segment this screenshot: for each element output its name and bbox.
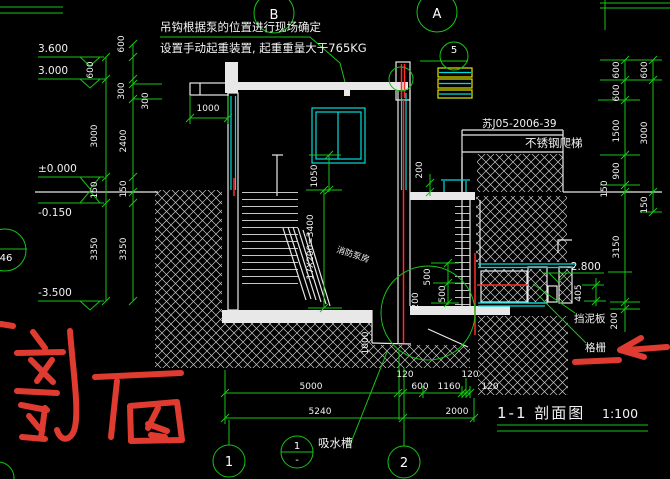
dim: 3150 bbox=[612, 235, 622, 258]
red-underline bbox=[575, 360, 619, 362]
dim: 600 bbox=[117, 35, 127, 52]
dim: 500 bbox=[438, 285, 448, 302]
dim: 500 bbox=[423, 268, 433, 285]
dim: 120 bbox=[481, 382, 498, 392]
drawing-title: 1-1 剖面图 bbox=[497, 404, 585, 422]
dim: 150 bbox=[90, 181, 100, 198]
dim: 3350 bbox=[119, 237, 129, 260]
elev-text-3000: 3.000 bbox=[38, 65, 68, 77]
left-dim-chains bbox=[102, 40, 162, 305]
dim: 600 bbox=[612, 61, 622, 78]
dim: 150 bbox=[600, 180, 610, 197]
red-edge-dash bbox=[1, 324, 13, 326]
drawing-scale: 1:100 bbox=[602, 406, 638, 421]
dim: 1000 bbox=[197, 104, 220, 114]
dim: 300 bbox=[117, 82, 127, 99]
dim: 3350 bbox=[90, 237, 100, 260]
dim: 405 bbox=[574, 284, 584, 301]
dim: 1050 bbox=[310, 164, 320, 187]
chamber-floor bbox=[410, 306, 510, 315]
sump-detail-sheet: - bbox=[295, 455, 299, 466]
handwritten-pou bbox=[17, 331, 76, 439]
drawing-canvas: 吊钩根据泵的位置进行现场确定 设置手动起重装置, 起重重量大于765KG 苏J0… bbox=[0, 0, 670, 479]
dim: 900 bbox=[612, 162, 622, 179]
dim: 1000 bbox=[361, 331, 371, 354]
dim: 1160 bbox=[438, 382, 461, 392]
dim-stair: 17X200=3400 bbox=[306, 214, 316, 280]
dim: 5000 bbox=[300, 382, 323, 392]
dim: 600 bbox=[640, 61, 650, 78]
lifting-hook bbox=[344, 90, 350, 96]
elev-text-3600: 3.600 bbox=[38, 43, 68, 55]
ladder-label: 不锈钢爬梯 bbox=[525, 136, 583, 150]
earth-hatch bbox=[155, 154, 572, 395]
stair-treads bbox=[242, 192, 298, 284]
title-underline bbox=[497, 425, 648, 431]
elev-3000 bbox=[38, 79, 106, 88]
bubble-46 bbox=[0, 229, 26, 271]
red-arrow bbox=[620, 338, 667, 357]
dim: 3000 bbox=[90, 124, 100, 147]
sump-label: 吸水槽 bbox=[318, 436, 353, 450]
mudguard-label: 挡泥板 bbox=[574, 312, 606, 325]
dim: 200 bbox=[610, 312, 620, 329]
dim: 2400 bbox=[119, 129, 129, 152]
elev-text-0: ±0.000 bbox=[38, 163, 77, 175]
dim: 150 bbox=[640, 196, 650, 213]
elev-text-m150: -0.150 bbox=[38, 207, 72, 219]
elev-m2800 bbox=[542, 273, 604, 282]
dim: 5240 bbox=[309, 407, 332, 417]
dim: 150 bbox=[119, 180, 129, 197]
dim: 300 bbox=[141, 92, 151, 109]
dim: 1500 bbox=[612, 119, 622, 142]
atlas-ref: 苏J05-2006-39 bbox=[482, 117, 557, 130]
left-parapet bbox=[225, 62, 238, 93]
dim: 120 bbox=[461, 370, 478, 380]
bubble-46-label: 46 bbox=[0, 253, 12, 264]
note-line2: 设置手动起重装置, 起重重量大于765KG bbox=[160, 41, 367, 55]
dim: 3000 bbox=[640, 121, 650, 144]
bubble-corner bbox=[0, 462, 14, 479]
elev-text-m3500: -3.500 bbox=[38, 287, 72, 299]
canopy bbox=[190, 83, 228, 95]
dim: 600 bbox=[411, 382, 428, 392]
elev-m3500 bbox=[38, 301, 104, 310]
detail-label-5: 5 bbox=[451, 45, 457, 56]
pit-floor-slab bbox=[222, 310, 372, 323]
dim: 2000 bbox=[446, 407, 469, 417]
dim: 200 bbox=[411, 292, 421, 309]
elev-text-m2800: -2.800 bbox=[567, 261, 601, 273]
grille-label: 格栅 bbox=[585, 341, 606, 354]
grid-label-B: B bbox=[270, 8, 279, 23]
ladder-rungs bbox=[455, 200, 470, 306]
dim: 120 bbox=[396, 370, 413, 380]
roof-slab bbox=[238, 82, 408, 90]
room-label: 消防泵房 bbox=[335, 244, 371, 265]
dim: 200 bbox=[415, 161, 425, 178]
ground-slab-right bbox=[410, 192, 475, 200]
handwritten-mian bbox=[95, 373, 182, 441]
grid-label-A: A bbox=[433, 7, 442, 22]
left-wall bbox=[228, 93, 238, 310]
grid-label-2: 2 bbox=[400, 456, 408, 471]
sump-detail-num: 1 bbox=[294, 441, 300, 452]
dim: 600 bbox=[86, 61, 96, 78]
note-line1: 吊钩根据泵的位置进行现场确定 bbox=[160, 20, 321, 34]
cad-section-drawing: 吊钩根据泵的位置进行现场确定 设置手动起重装置, 起重重量大于765KG 苏J0… bbox=[0, 0, 670, 479]
dim: 600 bbox=[612, 84, 622, 101]
grid-label-1: 1 bbox=[225, 455, 233, 470]
border-lines bbox=[0, 0, 670, 30]
